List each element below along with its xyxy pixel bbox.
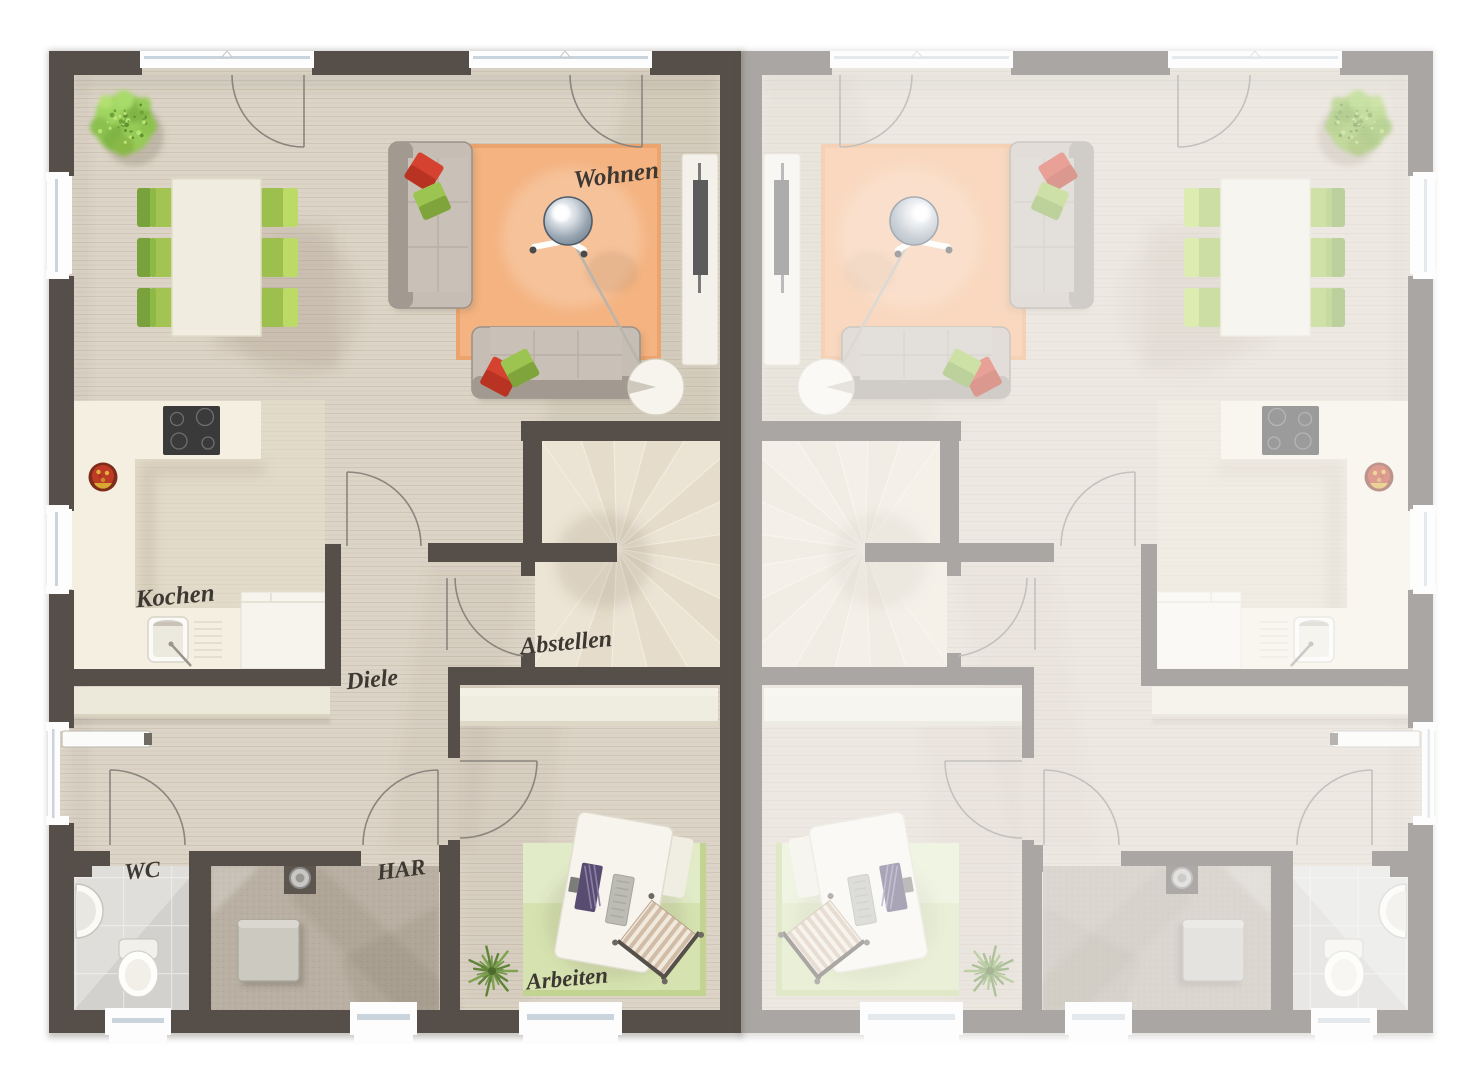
svg-text:WC: WC bbox=[123, 856, 161, 884]
svg-text:Diele: Diele bbox=[344, 665, 399, 696]
